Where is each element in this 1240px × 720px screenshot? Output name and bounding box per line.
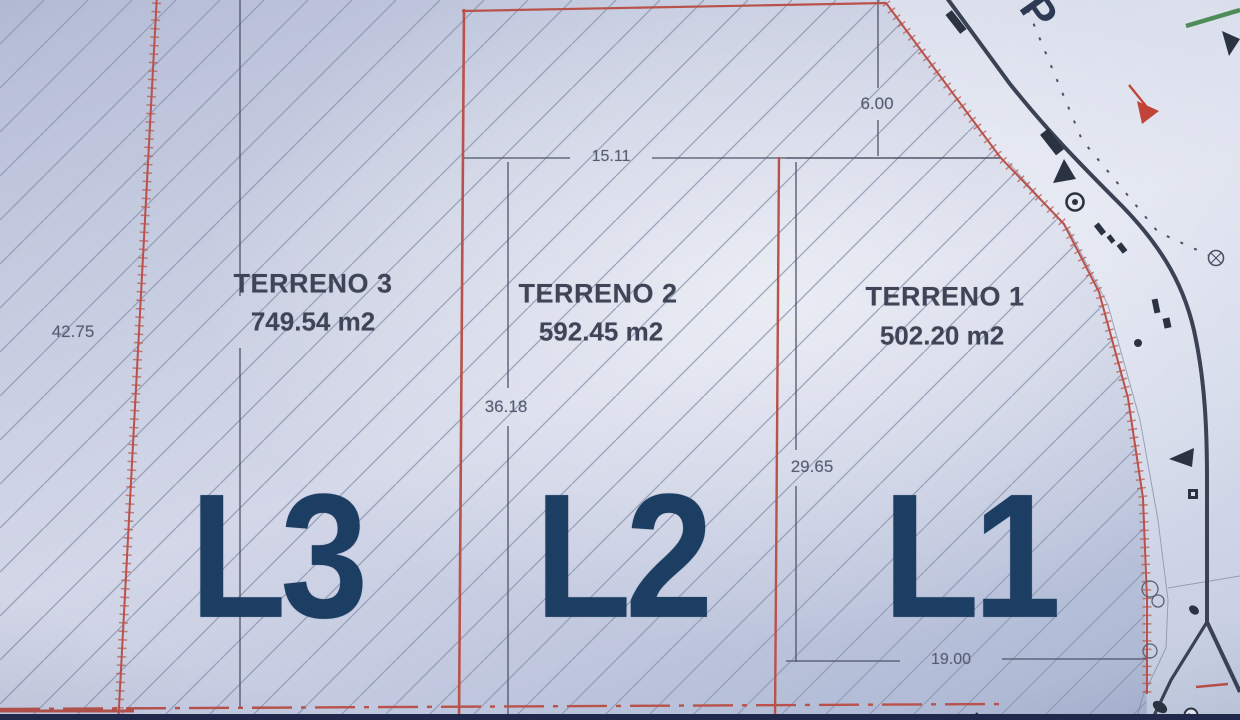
post-symbol-icon (1188, 489, 1198, 499)
dimension-label-42-75: 42.75 (52, 322, 95, 342)
dimension-label-15-11: 15.11 (592, 148, 631, 166)
parcel-terreno2-area: 592.45 m2 (539, 317, 663, 348)
point-symbol-icon (1134, 339, 1142, 347)
lot-label-l2: L2 (535, 456, 707, 659)
dimension-label-29-65: 29.65 (791, 457, 834, 477)
site-plan-photo: TERRENO 3 749.54 m2 TERRENO 2 592.45 m2 … (0, 0, 1240, 720)
lot-label-l1: L1 (883, 456, 1055, 659)
lot-label-l3: L3 (190, 456, 362, 659)
parcel-terreno1-area: 502.20 m2 (880, 321, 1004, 352)
bottom-navy-bar (0, 714, 1240, 720)
dimension-label-6-00: 6.00 (860, 94, 893, 114)
parcel-terreno2-name: TERRENO 2 (518, 279, 677, 310)
dimension-label-19-00: 19.00 (931, 651, 971, 669)
manhole-icon (1067, 194, 1084, 211)
dimension-label-36-18: 36.18 (485, 397, 528, 417)
parcel-terreno3-name: TERRENO 3 (233, 269, 392, 300)
parcel-terreno3-area: 749.54 m2 (251, 307, 375, 338)
parcel-terreno1-name: TERRENO 1 (865, 282, 1024, 313)
